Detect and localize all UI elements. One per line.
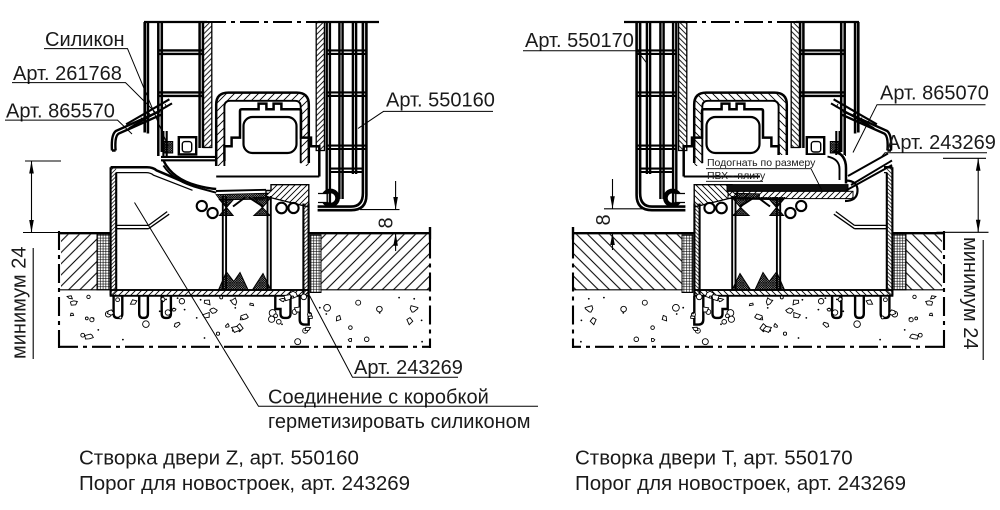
svg-text:Соединение с коробкой: Соединение с коробкой: [268, 387, 489, 409]
svg-text:Подогнать по размеру: Подогнать по размеру: [707, 157, 816, 169]
svg-text:Створка двери Т, арт. 550170: Створка двери Т, арт. 550170: [575, 447, 853, 470]
svg-text:Створка двери Z, арт. 550160: Створка двери Z, арт. 550160: [79, 447, 359, 470]
svg-text:Арт. 261768: Арт. 261768: [13, 63, 122, 85]
svg-text:8: 8: [376, 217, 398, 228]
svg-text:Силикон: Силикон: [45, 29, 125, 51]
svg-text:ПВХ - плиту: ПВХ - плиту: [707, 170, 766, 182]
svg-text:Арт. 865570: Арт. 865570: [6, 101, 115, 123]
svg-text:Порог для новостроек, арт. 243: Порог для новостроек, арт. 243269: [575, 472, 906, 495]
svg-text:Арт. 243269: Арт. 243269: [887, 132, 996, 154]
svg-text:минимум 24: минимум 24: [9, 247, 31, 359]
svg-text:Арт. 550160: Арт. 550160: [386, 90, 495, 112]
svg-text:8: 8: [593, 214, 615, 225]
svg-text:Арт. 550170: Арт. 550170: [525, 30, 634, 52]
svg-text:минимум 24: минимум 24: [959, 237, 981, 349]
svg-text:Арт. 243269: Арт. 243269: [354, 357, 463, 379]
svg-text:Порог для новостроек, арт. 243: Порог для новостроек, арт. 243269: [79, 472, 410, 495]
svg-text:Арт. 865070: Арт. 865070: [880, 83, 989, 105]
svg-text:герметизировать силиконом: герметизировать силиконом: [268, 411, 530, 433]
